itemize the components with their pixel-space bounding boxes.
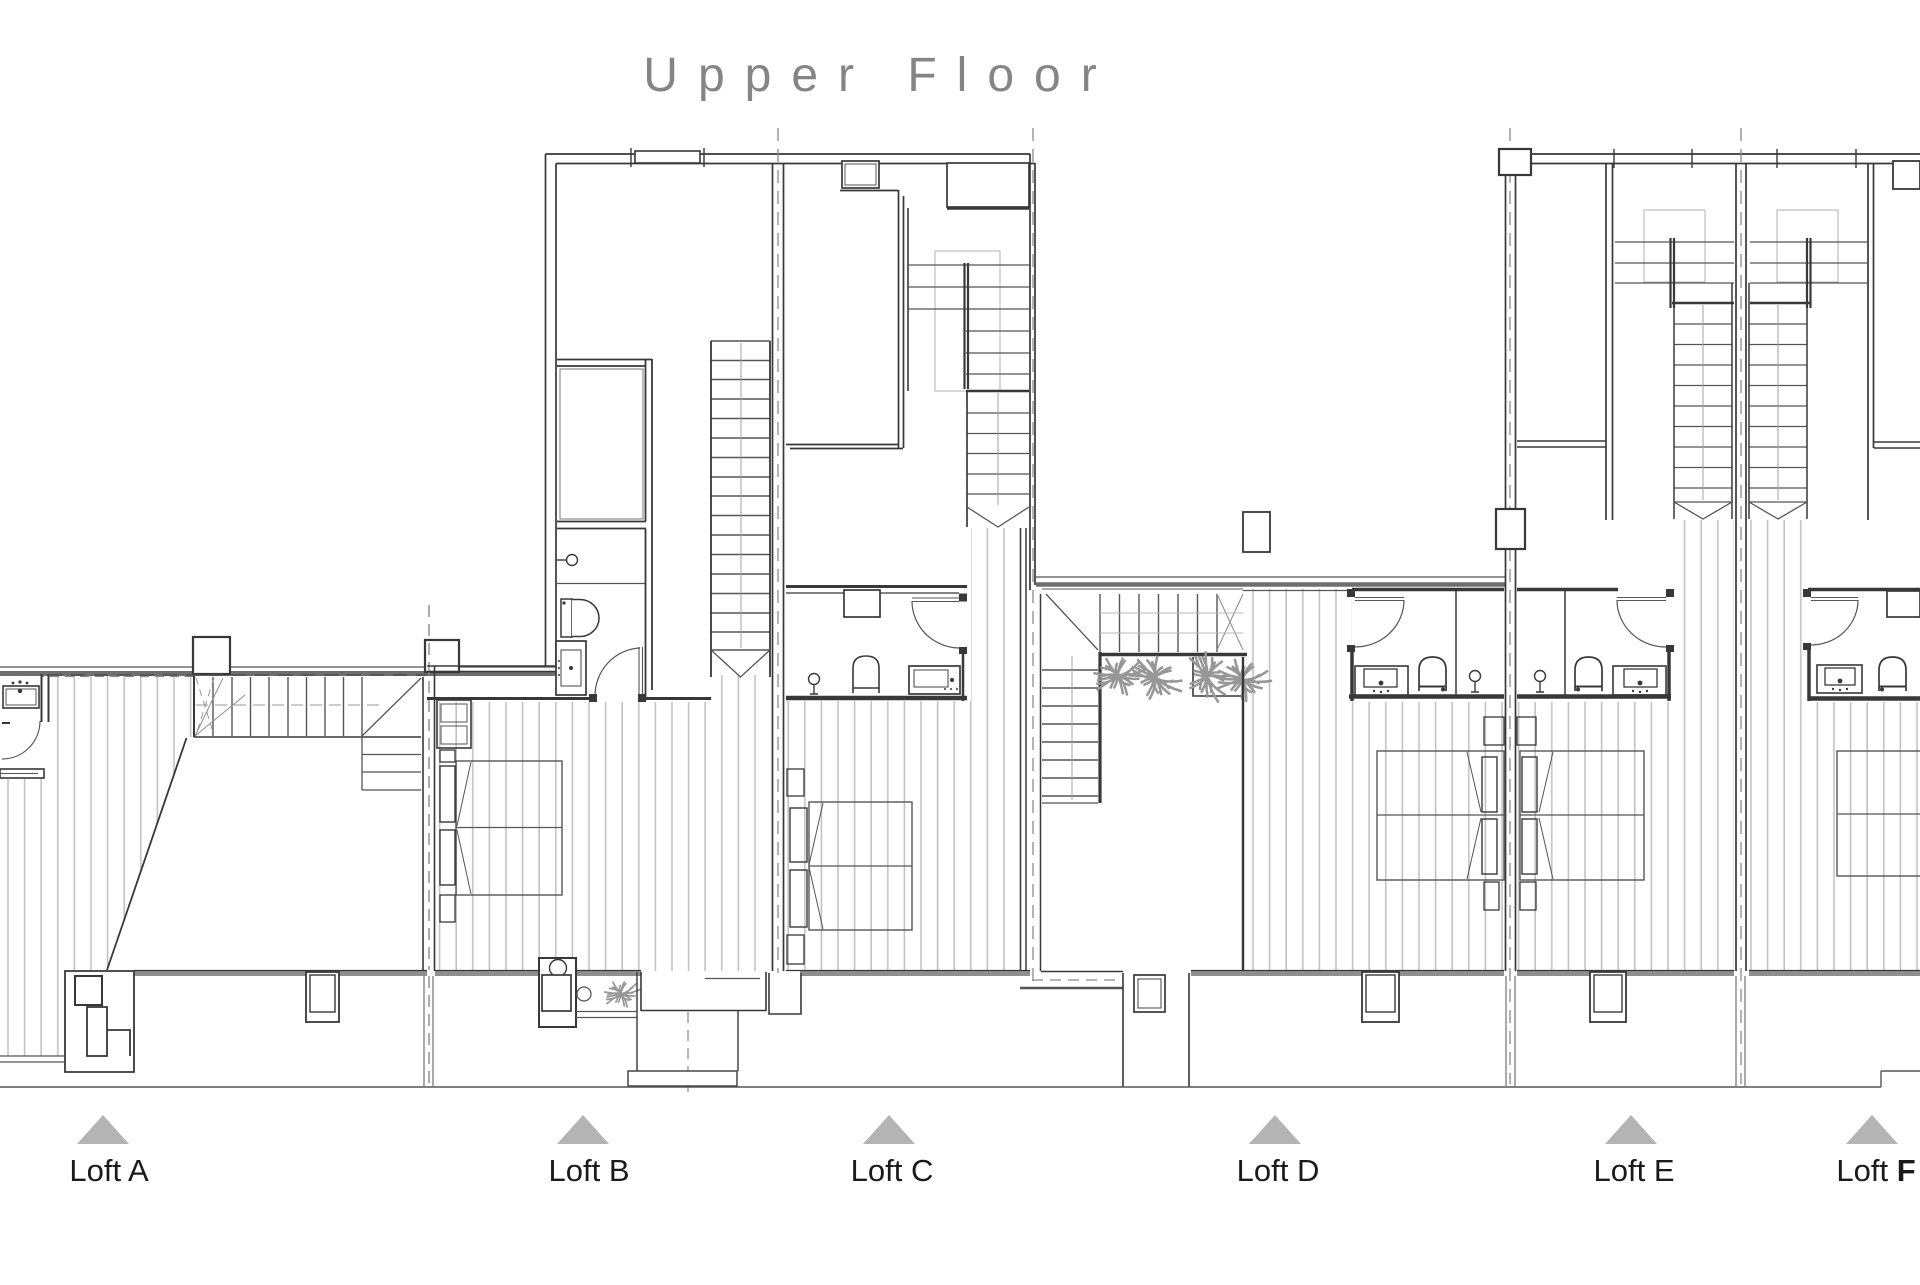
- svg-text:Loft A: Loft A: [69, 1153, 149, 1188]
- svg-text:Loft D: Loft D: [1237, 1153, 1320, 1188]
- svg-text:Loft C: Loft C: [851, 1153, 934, 1188]
- svg-text:Loft B: Loft B: [549, 1153, 630, 1188]
- svg-text:Loft F: Loft F: [1836, 1153, 1915, 1188]
- svg-text:Loft E: Loft E: [1594, 1153, 1675, 1188]
- svg-text:Upper Floor: Upper Floor: [643, 49, 1116, 102]
